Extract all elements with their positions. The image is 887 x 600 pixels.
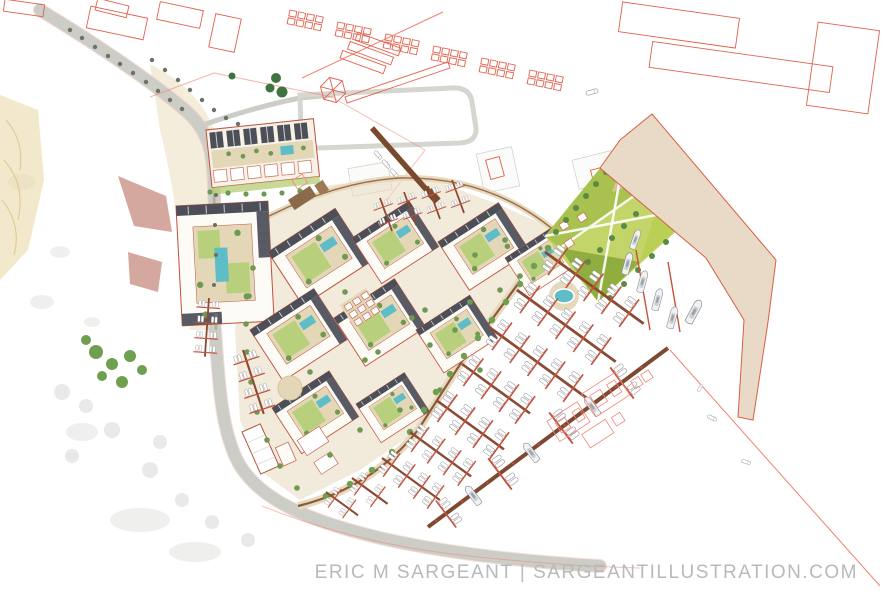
- siteplan-svg: ERIC M SARGEANT | SARGEANTILLUSTRATION.C…: [0, 0, 887, 600]
- hexagon-structure-outline: [318, 76, 349, 105]
- townhouse-row: [206, 119, 320, 195]
- park-pond: [549, 281, 579, 311]
- ghost-structure-outlines: [545, 356, 667, 459]
- hillside-grove: [81, 335, 147, 388]
- watermark-text: ERIC M SARGEANT | SARGEANTILLUSTRATION.C…: [315, 562, 858, 583]
- townhouse-pool: [280, 145, 294, 155]
- apartment-block-west: [176, 201, 274, 326]
- pine-cluster: [229, 73, 288, 98]
- siteplan-illustration: ERIC M SARGEANT | SARGEANTILLUSTRATION.C…: [0, 0, 887, 600]
- courtyard-pool: [214, 247, 229, 282]
